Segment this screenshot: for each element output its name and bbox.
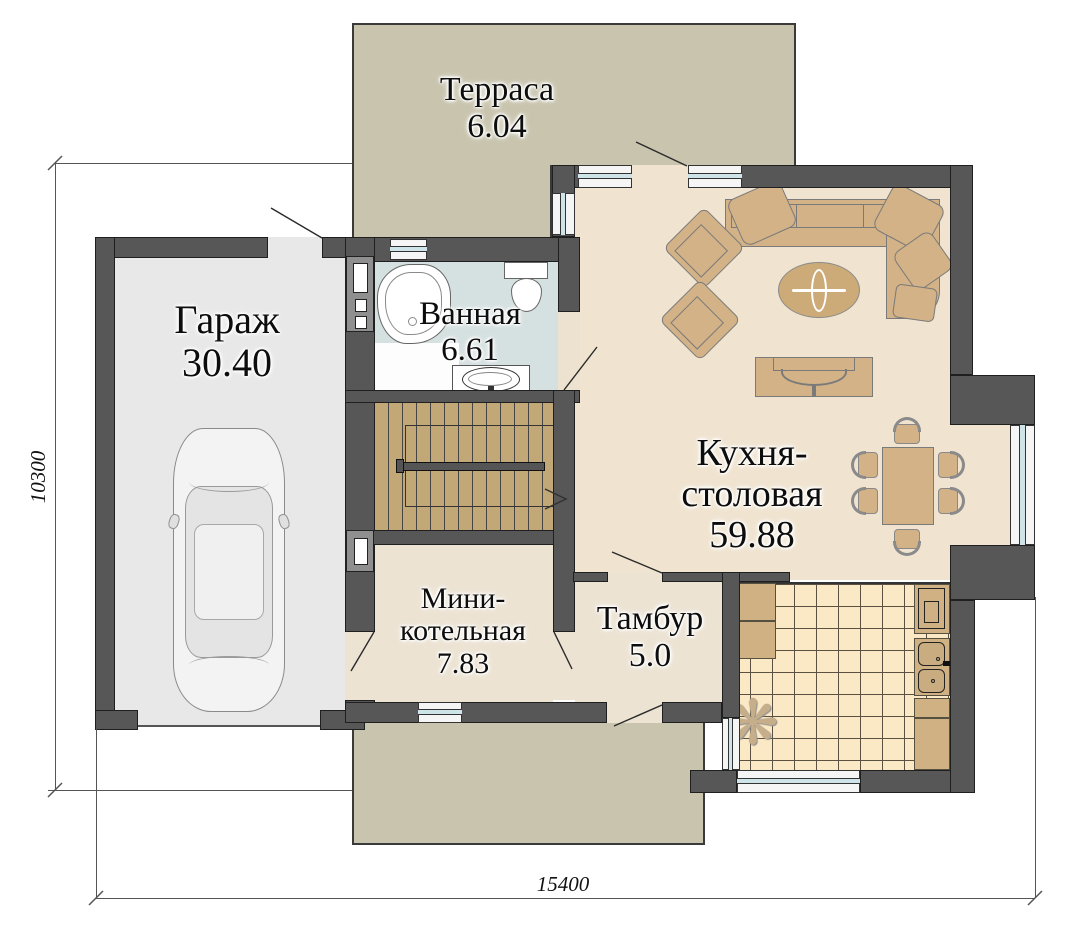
room-label-boiler: Мини- котельная 7.83 xyxy=(363,583,563,680)
room-name-line1: Мини- xyxy=(363,583,563,615)
window xyxy=(737,770,860,793)
bay-window-floor xyxy=(950,425,1012,545)
wall-east-upper xyxy=(950,165,973,375)
wall-east-lower xyxy=(950,600,975,793)
wall-garage-bottom-left xyxy=(95,710,138,730)
garage-top-door-opening xyxy=(268,237,322,258)
wall-vestibule-top-left xyxy=(573,572,608,582)
room-area: 5.0 xyxy=(550,638,750,675)
sink-bowl xyxy=(918,669,945,693)
floor-plan-canvas: ❋ xyxy=(0,0,1065,935)
sofa-back-divider xyxy=(796,204,797,228)
wall-bathroom-top xyxy=(345,237,580,262)
stairs-handrail xyxy=(400,462,545,471)
wall-south-service-left xyxy=(345,702,607,723)
dimension-label-bottom: 15400 xyxy=(503,872,623,898)
wall-south-service-right xyxy=(662,702,722,723)
room-area: 7.83 xyxy=(363,648,563,680)
car-windshield-line xyxy=(189,472,269,492)
car xyxy=(173,428,285,712)
room-name-line1: Кухня- xyxy=(557,433,947,474)
wall-east-step-upper xyxy=(950,375,1035,425)
vent-shaft-block xyxy=(346,530,374,572)
room-label-vestibule: Тамбур 5.0 xyxy=(550,601,750,674)
room-name: Гараж xyxy=(107,298,347,341)
window-bay xyxy=(1010,425,1035,545)
window xyxy=(418,702,462,723)
porch-floor xyxy=(352,723,705,845)
room-label-terrace: Терраса 6.04 xyxy=(377,72,617,145)
room-name: Терраса xyxy=(377,72,617,109)
coffee-table-center xyxy=(811,269,827,312)
dimension-line-bottom xyxy=(96,898,1035,899)
car-rear-line xyxy=(189,656,269,674)
door-swing-garage-top xyxy=(271,208,322,238)
room-name-line2: котельная xyxy=(363,615,563,647)
sofa-back-divider xyxy=(863,204,864,228)
room-area: 30.40 xyxy=(107,341,347,384)
extension-line-bottom-left xyxy=(48,790,352,791)
stove xyxy=(914,584,950,634)
window xyxy=(552,193,575,235)
wall-bath-stairs xyxy=(345,390,580,403)
wall-stairs-boiler xyxy=(345,530,570,545)
room-area: 59.88 xyxy=(557,515,947,556)
wall-garage-top-left xyxy=(95,237,268,258)
wall-east-step-lower xyxy=(950,545,1035,600)
window xyxy=(390,239,427,260)
kitchen-counter xyxy=(914,698,950,718)
terrace-floor-lower xyxy=(352,165,552,239)
room-name-line2: столовая xyxy=(557,474,947,515)
room-label-kitchen-dining: Кухня- столовая 59.88 xyxy=(557,433,947,556)
vestibule-top-door-opening xyxy=(608,572,662,582)
extension-line-right xyxy=(1035,597,1036,898)
room-area: 6.04 xyxy=(377,109,617,146)
stairs-handrail-post xyxy=(396,459,404,473)
room-name: Ванная xyxy=(370,297,570,333)
stove-door xyxy=(924,601,939,623)
wall-kitchen-bottom-left xyxy=(690,770,737,793)
window xyxy=(578,165,632,188)
sink-bowl xyxy=(918,642,945,666)
extension-line-garage-bottom xyxy=(96,727,97,898)
car-roof xyxy=(194,524,264,620)
extension-line-top-left xyxy=(55,163,352,164)
room-label-bathroom: Ванная 6.61 xyxy=(370,297,570,368)
coffee-table xyxy=(778,262,860,318)
room-name: Тамбур xyxy=(550,601,750,638)
garage-door-opening xyxy=(138,710,320,727)
dimension-label-left: 10300 xyxy=(26,432,50,522)
vestibule-bottom-door-opening xyxy=(607,702,662,723)
room-area: 6.61 xyxy=(370,333,570,369)
room-label-garage: Гараж 30.40 xyxy=(107,298,347,384)
terrace-door-opening xyxy=(632,165,688,188)
tv-stand-leg xyxy=(812,385,816,397)
kitchen-counter xyxy=(914,718,950,770)
sofa-end-seat xyxy=(892,283,938,323)
kitchen-sink-unit xyxy=(914,638,950,696)
window xyxy=(722,718,740,770)
window xyxy=(688,165,742,188)
dimension-line-left xyxy=(55,163,56,790)
toilet-tank xyxy=(504,262,548,279)
